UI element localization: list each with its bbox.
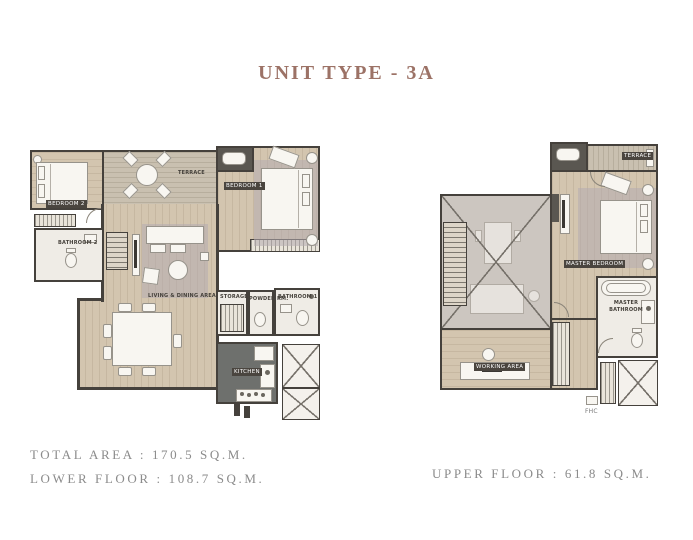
toilet <box>631 333 643 348</box>
dining-chair <box>103 324 112 338</box>
pillow <box>38 184 45 198</box>
toilet <box>65 253 77 268</box>
page-title: UNIT TYPE - 3A <box>0 62 693 85</box>
kitchen-counter <box>260 364 275 388</box>
pillow <box>302 174 310 188</box>
sink <box>280 304 292 313</box>
service-pipe <box>244 406 250 418</box>
wardrobe <box>600 362 616 404</box>
tv-icon <box>562 200 565 228</box>
bed-line <box>50 164 51 202</box>
wall-niche <box>552 194 559 222</box>
fire-hose-cabinet <box>586 396 598 405</box>
wall <box>77 298 80 390</box>
label-bathroom-1: BATHROOM 1 <box>278 294 317 301</box>
pillow <box>302 192 310 206</box>
label-terrace-upper: TERRACE <box>622 152 653 160</box>
wall <box>77 298 104 301</box>
lower-floor-area-text: LOWER FLOOR : 108.7 SQ.M. <box>30 471 264 487</box>
wardrobe <box>34 214 76 227</box>
wall <box>77 387 220 390</box>
pillow <box>640 220 648 233</box>
nightstand-lamp-icon <box>306 234 318 246</box>
lower-floor-plan: BEDROOM 2 TERRACE BEDROOM 1 BATHROOM 2 <box>30 144 322 436</box>
armchair <box>142 267 160 285</box>
shaft-x-upper <box>282 344 320 388</box>
dining-chair <box>173 334 182 348</box>
label-master-bedroom: MASTER BEDROOM <box>564 260 625 268</box>
burner <box>261 393 265 397</box>
label-living-dining: LIVING & DINING AREA <box>148 293 216 300</box>
sofa-cushion <box>170 244 186 253</box>
ac-unit-icon <box>222 152 246 165</box>
floor-plan-page: UNIT TYPE - 3A BEDROOM 2 <box>0 0 693 540</box>
upper-floor-area-text: UPPER FLOOR : 61.8 SQ.M. <box>432 466 652 482</box>
tv-icon <box>134 240 137 268</box>
pillow <box>38 166 45 180</box>
dining-chair <box>142 367 156 376</box>
label-terrace-lower: TERRACE <box>178 170 205 177</box>
label-kitchen: KITCHEN <box>232 368 262 376</box>
stairs <box>443 222 467 306</box>
sink-basin <box>646 306 651 311</box>
burner <box>247 393 251 397</box>
bathtub-basin <box>606 283 646 293</box>
dining-chair <box>142 303 156 312</box>
burner <box>240 392 244 396</box>
nightstand-lamp-icon <box>306 152 318 164</box>
sink-basin <box>265 370 270 375</box>
sofa <box>146 226 204 244</box>
side-table <box>200 252 209 261</box>
coffee-table <box>168 260 188 280</box>
desk-chair <box>482 348 495 361</box>
open-to-below-x <box>618 360 658 406</box>
bed-line <box>298 170 299 228</box>
label-bedroom-1: BEDROOM 1 <box>224 182 265 190</box>
fridge <box>254 346 274 361</box>
stairs <box>106 232 128 270</box>
dining-chair <box>118 367 132 376</box>
nightstand-lamp-icon <box>642 184 654 196</box>
wardrobe <box>552 322 570 386</box>
pillow <box>640 204 648 217</box>
service-pipe <box>234 404 240 416</box>
sofa-cushion <box>150 244 166 253</box>
label-bathroom-2: BATHROOM 2 <box>58 240 97 247</box>
room-working-area <box>440 328 552 390</box>
bed-line <box>636 202 637 252</box>
toilet <box>296 310 309 326</box>
label-master-bathroom: MASTER BATHROOM <box>606 300 646 314</box>
total-area-text: TOTAL AREA : 170.5 SQ.M. <box>30 447 248 463</box>
label-bedroom-2: BEDROOM 2 <box>46 200 87 208</box>
terrace-table <box>136 164 158 186</box>
dining-chair <box>103 346 112 360</box>
shaft-x-lower <box>282 388 320 420</box>
door-arc <box>86 208 101 223</box>
upper-floor-plan: TERRACE WORKING AREA <box>438 138 664 430</box>
dining-table <box>112 312 172 366</box>
ac-unit-icon <box>556 148 580 161</box>
toilet <box>254 312 266 327</box>
label-fhc: FHC <box>585 408 598 416</box>
storage-shelves <box>220 304 244 332</box>
burner <box>254 392 258 396</box>
label-working-area: WORKING AREA <box>474 363 525 371</box>
label-storage: STORAGE <box>220 294 248 301</box>
nightstand-lamp-icon <box>642 258 654 270</box>
dining-chair <box>118 303 132 312</box>
